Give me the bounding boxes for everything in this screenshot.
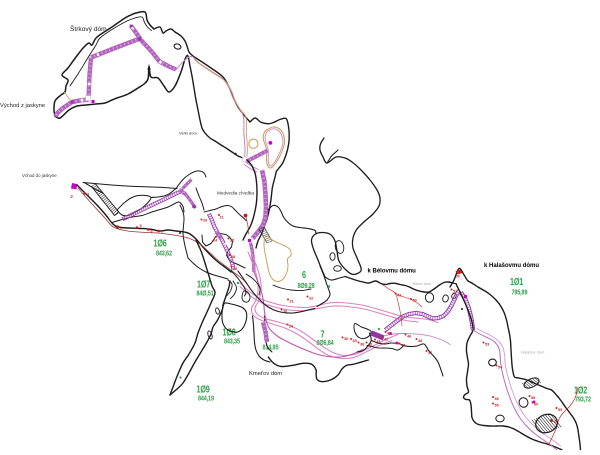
svg-text:k Halašovmu dómu: k Halašovmu dómu bbox=[484, 263, 539, 269]
svg-text:795,89: 795,89 bbox=[512, 289, 528, 297]
svg-text:47: 47 bbox=[428, 351, 432, 355]
svg-text:793,72: 793,72 bbox=[575, 396, 591, 404]
svg-text:50: 50 bbox=[456, 275, 460, 279]
svg-text:58: 58 bbox=[531, 396, 535, 400]
svg-text:48: 48 bbox=[418, 339, 422, 343]
svg-text:1Ø9: 1Ø9 bbox=[197, 383, 210, 394]
svg-text:53: 53 bbox=[485, 343, 489, 347]
svg-text:25: 25 bbox=[230, 239, 234, 243]
svg-text:Veľkí dóm: Veľkí dóm bbox=[179, 131, 198, 136]
svg-text:1Ø6: 1Ø6 bbox=[154, 237, 167, 248]
svg-text:k Bélovmu dómu: k Bélovmu dómu bbox=[368, 269, 417, 275]
svg-text:6: 6 bbox=[151, 230, 153, 234]
svg-text:32: 32 bbox=[309, 297, 313, 301]
svg-text:8Ø9,28: 8Ø9,28 bbox=[298, 282, 315, 290]
svg-text:46: 46 bbox=[407, 335, 411, 339]
svg-text:42: 42 bbox=[384, 338, 388, 342]
svg-text:7: 7 bbox=[321, 328, 325, 339]
svg-text:6: 6 bbox=[302, 269, 306, 280]
svg-text:23: 23 bbox=[233, 267, 237, 271]
svg-text:1Ø1: 1Ø1 bbox=[510, 276, 523, 287]
svg-text:41: 41 bbox=[377, 340, 381, 344]
svg-text:84Ø,51: 84Ø,51 bbox=[197, 290, 214, 298]
svg-text:28: 28 bbox=[231, 255, 235, 259]
svg-text:843,35: 843,35 bbox=[224, 338, 240, 346]
svg-text:7: 7 bbox=[161, 231, 163, 235]
svg-text:Štrkový dóm: Štrkový dóm bbox=[70, 24, 107, 33]
svg-text:40: 40 bbox=[368, 343, 372, 347]
svg-text:59: 59 bbox=[558, 408, 562, 412]
svg-text:45: 45 bbox=[401, 344, 405, 348]
svg-text:Kmeťov dóm: Kmeťov dóm bbox=[249, 371, 282, 377]
svg-text:Halašov dóm: Halašov dóm bbox=[521, 350, 545, 355]
svg-text:30: 30 bbox=[283, 310, 287, 314]
svg-text:Medvedia chodba: Medvedia chodba bbox=[217, 191, 254, 196]
svg-text:55: 55 bbox=[495, 404, 499, 408]
svg-text:844,19: 844,19 bbox=[198, 395, 214, 403]
svg-text:Bielov dóm: Bielov dóm bbox=[413, 282, 432, 286]
svg-text:1Ø7: 1Ø7 bbox=[197, 278, 210, 289]
svg-text:31: 31 bbox=[290, 300, 294, 304]
svg-text:36: 36 bbox=[344, 337, 348, 341]
svg-text:26: 26 bbox=[203, 219, 207, 223]
svg-text:38: 38 bbox=[360, 343, 364, 347]
svg-text:Východ z jaskyne: Východ z jaskyne bbox=[0, 103, 45, 109]
svg-text:21: 21 bbox=[220, 216, 224, 220]
svg-text:39: 39 bbox=[353, 339, 357, 343]
svg-text:52: 52 bbox=[453, 290, 457, 294]
svg-text:843,62: 843,62 bbox=[156, 250, 172, 258]
svg-text:8Ø6,84: 8Ø6,84 bbox=[317, 339, 334, 347]
svg-text:5: 5 bbox=[140, 224, 142, 228]
svg-text:56: 56 bbox=[495, 397, 499, 401]
svg-text:29: 29 bbox=[289, 325, 293, 329]
svg-text:3: 3 bbox=[87, 193, 89, 197]
svg-text:Vchod do jaskyne: Vchod do jaskyne bbox=[22, 173, 57, 178]
